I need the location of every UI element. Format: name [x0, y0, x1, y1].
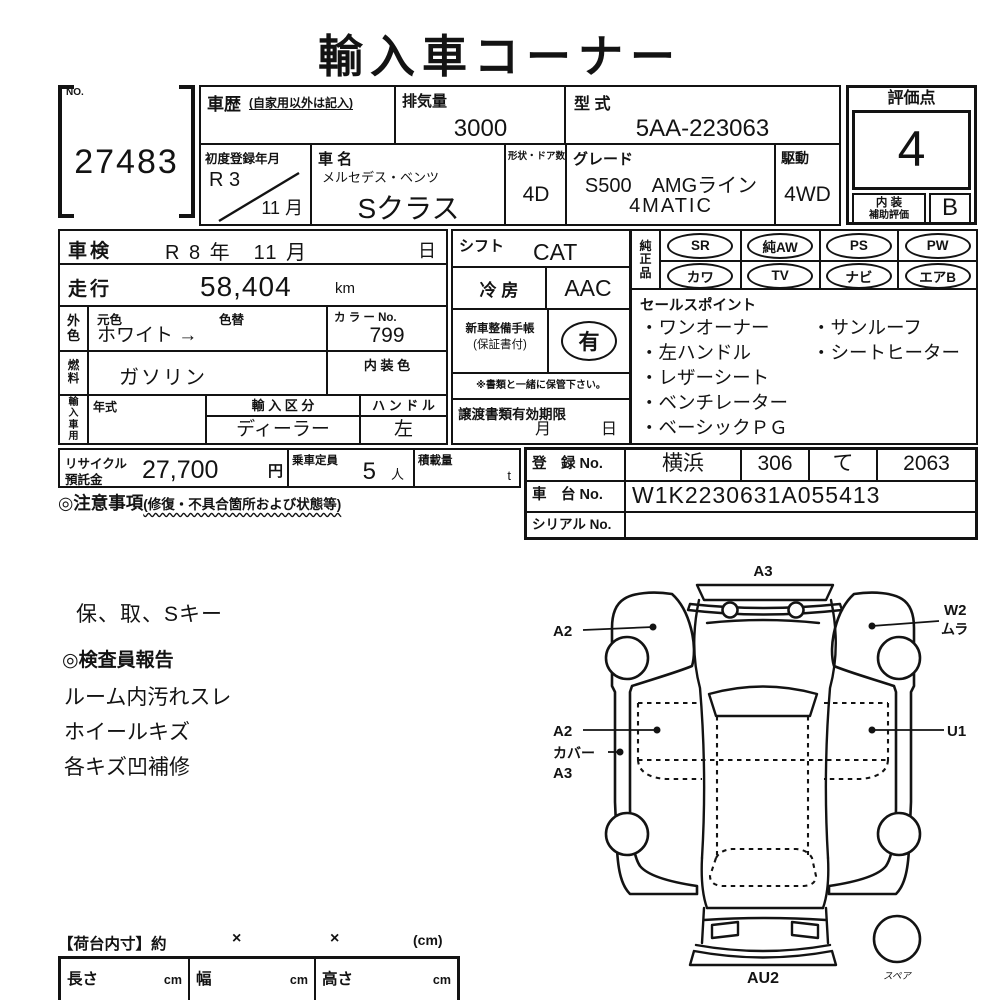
inspector-note: ルーム内汚れスレ	[64, 681, 231, 711]
oem-item-sr: SR	[667, 233, 733, 259]
shift-value: CAT	[533, 239, 577, 266]
sales-point: ・シートヒーター	[812, 340, 960, 365]
car-name-box: 車 名 メルセデス・ベンツ Sクラス	[310, 143, 507, 226]
cargo-height-unit: cm	[433, 973, 451, 987]
shift-box: シフト CAT	[451, 229, 631, 268]
import-use-label-cell: 輸入車用	[60, 396, 89, 443]
page-title: 輸入車コーナー	[0, 20, 1000, 85]
service-book-label: 新車整備手帳	[453, 320, 547, 336]
wheel-front-right	[878, 637, 920, 679]
interior-grade-label-box: 内 装 補助評価	[852, 193, 926, 224]
reg-no-number: 2063	[878, 450, 975, 480]
damage-label-a2-upper: A2	[553, 623, 572, 640]
fuel-label: 燃料	[67, 360, 81, 386]
handle-value: 左	[361, 417, 446, 443]
cargo-times-1: ×	[232, 930, 241, 948]
transfer-box: 譲渡書類有効期限 月 日	[451, 398, 631, 445]
chassis-row: 車 台 No. W1K2230631A055413	[527, 480, 975, 512]
chassis-value: W1K2230631A055413	[626, 482, 975, 512]
shape-doors-label: 形状・ドア数	[508, 148, 565, 162]
shift-label: シフト	[459, 235, 504, 256]
import-row: 輸入車用 年式 輸 入 区 分 ディーラー ハ ン ド ル 左	[58, 394, 448, 445]
rear-window-dashed	[710, 849, 816, 886]
caution-line: ◎注意事項(修復・不具合箇所および状態等)	[58, 490, 341, 515]
fuel-value: ガソリン	[119, 361, 207, 390]
recycle-label-2: 預託金	[65, 469, 103, 488]
grade-box: グレード S500 AMGライン 4MATIC	[565, 143, 777, 226]
sales-points-label: セールスポイント	[640, 294, 968, 315]
year-cell: 年式	[89, 396, 207, 443]
interior-grade-label-2: 補助評価	[854, 210, 924, 221]
service-book-sub: (保証書付)	[453, 336, 547, 352]
sales-points-box: セールスポイント ・ワンオーナー・サンルーフ ・左ハンドル・シートヒーター ・レ…	[630, 288, 978, 445]
color-no-value: 799	[328, 324, 446, 348]
import-use-label: 輸入車用	[68, 397, 80, 442]
leader-dot	[650, 624, 657, 631]
cargo-width-unit: cm	[290, 973, 308, 987]
serial-row: シリアル No.	[527, 511, 975, 537]
damage-label-spare: スペア	[883, 971, 912, 982]
oem-item-kawa: カワ	[667, 263, 733, 289]
service-book-box: 新車整備手帳 (保証書付) 有 ※書類と一緒に保管下さい。	[451, 308, 631, 400]
oem-item-navi: ナビ	[826, 263, 892, 289]
shaken-row: 車検 R 8 年 11 月 日	[58, 229, 448, 265]
service-book-stamp: 有	[561, 321, 617, 361]
recycle-value: 27,700	[142, 456, 218, 485]
damage-label-au2: AU2	[747, 970, 779, 987]
ac-value-cell: AAC	[547, 268, 629, 308]
mileage-row: 走行 58,404 km	[58, 263, 448, 307]
ext-color-label-cell: 外色	[60, 307, 89, 350]
leader-dot	[869, 727, 876, 734]
cargo-table: 長さ cm 幅 cm 高さ cm	[58, 956, 460, 1000]
interior-grade-value-box: B	[929, 193, 971, 224]
import-class-value: ディーラー	[207, 417, 359, 443]
capacity-value: 5	[363, 458, 376, 486]
interior-grade-label-1: 内 装	[854, 196, 924, 210]
sales-point: ・ワンオーナー	[640, 315, 812, 340]
caution-note: (修復・不具合箇所および状態等)	[143, 497, 341, 512]
cargo-height-label: 高さ	[322, 967, 353, 989]
registration-box: 登 録 No. 横浜 306 て 2063 車 台 No. W1K2230631…	[524, 447, 978, 540]
load-box: 積載量 t	[413, 448, 521, 488]
color-no-label: カ ラ ー No.	[334, 309, 397, 325]
car-body-rear-right	[823, 858, 828, 908]
sales-point: ・レザーシート	[640, 365, 812, 390]
shape-doors-value: 4D	[506, 183, 566, 207]
leader-a2-upper	[583, 627, 653, 630]
car-diagram: A3 A2 W2 ムラ A2 カバー A3 U1 AU2 スペア	[520, 558, 990, 1000]
cargo-length-cell: 長さ cm	[61, 959, 190, 1000]
car-body-rear-left	[702, 858, 707, 908]
load-label: 積載量	[418, 452, 453, 468]
damage-label-a3-left: A3	[553, 765, 572, 782]
tail-light-right	[792, 922, 818, 938]
tail-light-left	[712, 922, 738, 938]
cargo-times-2: ×	[330, 930, 339, 948]
leader-dot	[654, 727, 661, 734]
wheel-front-left	[606, 637, 648, 679]
score-value: 4	[898, 121, 926, 177]
sales-point: ・左ハンドル	[640, 340, 812, 365]
recycle-unit: 円	[268, 460, 283, 481]
recycle-box: リサイクル 預託金 27,700 円	[58, 448, 290, 488]
service-note: ※書類と一緒に保管下さい。	[453, 372, 629, 398]
oem-item-airbag: エアB	[905, 263, 971, 289]
cargo-unit-note: (cm)	[413, 932, 443, 948]
cargo-height-cell: 高さ cm	[316, 959, 457, 1000]
washer-right	[789, 603, 804, 618]
history-box: 車歴 (自家用以外は記入)	[199, 85, 397, 146]
displacement-box: 排気量 3000	[394, 85, 567, 146]
fuel-label-cell: 燃料	[60, 352, 89, 394]
front-bumper-lip	[688, 604, 842, 615]
reg-no-class: 306	[742, 450, 810, 480]
sales-point: ・サンルーフ	[812, 315, 922, 340]
displacement-label: 排気量	[402, 90, 447, 111]
wheel-rear-right	[878, 813, 920, 855]
damage-label-u1: U1	[947, 723, 966, 740]
sales-point: ・ベンチレーター	[640, 390, 812, 415]
shaken-value: R 8 年 11 月	[165, 236, 308, 265]
fuel-value-cell: ガソリン	[89, 352, 326, 394]
oem-item-tv: TV	[747, 263, 813, 289]
handle-label: ハ ン ド ル	[361, 396, 446, 417]
front-bumper	[697, 585, 833, 600]
drive-value: 4WD	[776, 183, 839, 207]
cowl-line	[707, 620, 819, 623]
washer-left	[723, 603, 738, 618]
fuel-row: 燃料 ガソリン 内 装 色	[58, 350, 448, 396]
inspector-note: ホイールキズ	[64, 716, 190, 746]
damage-label-cover: カバー	[553, 745, 595, 761]
rear-door-dashed-left	[638, 760, 702, 779]
car-name-label: 車 名	[318, 148, 352, 169]
rear-door-dashed-right	[824, 760, 888, 779]
model-code-label: 型 式	[574, 90, 610, 114]
interior-color-cell: 内 装 色	[326, 352, 446, 394]
score-box: 評価点 4 内 装 補助評価 B	[846, 85, 977, 225]
keys-note: 保、取、Sキー	[76, 598, 223, 628]
history-note: (自家用以外は記入)	[249, 94, 353, 111]
year-label: 年式	[93, 398, 117, 415]
interior-grade-value: B	[942, 194, 958, 221]
cargo-title: 【荷台内寸】約	[58, 932, 167, 954]
drive-label: 駆動	[781, 148, 809, 168]
damage-label-a3-front: A3	[753, 563, 772, 580]
score-label: 評価点	[849, 88, 974, 110]
lot-no-bracket: NO. 27483	[58, 85, 195, 218]
auction-sheet: 輸入車コーナー NO. 27483 車歴 (自家用以外は記入) 排気量 3000…	[0, 0, 1000, 1000]
oem-item-ps: PS	[826, 233, 892, 259]
history-label: 車歴	[207, 90, 241, 115]
oem-label-cell: 純正品	[632, 231, 661, 289]
reg-no-kana: て	[810, 450, 878, 480]
ac-value: AAC	[564, 275, 611, 302]
service-book-value: 有	[579, 326, 600, 356]
capacity-box: 乗車定員 5 人	[287, 448, 416, 488]
interior-color-label: 内 装 色	[328, 355, 446, 374]
grade-line2: 4MATIC	[567, 195, 775, 218]
transfer-day: 日	[601, 415, 617, 439]
reg-no-area: 横浜	[626, 450, 742, 480]
sales-point: ・ベーシックＰＧ	[640, 415, 812, 440]
color-no-cell: カ ラ ー No. 799	[326, 307, 446, 350]
displacement-value: 3000	[396, 115, 565, 143]
caution-label: ◎注意事項	[58, 493, 143, 513]
capacity-label: 乗車定員	[292, 452, 338, 468]
car-maker: メルセデス・ベンツ	[322, 167, 439, 186]
inspector-note: 各キズ凹補修	[64, 751, 190, 781]
rear-bumper-skirt	[690, 945, 836, 965]
oem-label: 純正品	[638, 240, 652, 280]
door-area-dashed	[638, 703, 888, 760]
grade-line1: S500 AMGライン	[567, 169, 775, 198]
capacity-unit: 人	[391, 464, 404, 483]
reg-no-label: 登 録 No.	[527, 450, 626, 480]
damage-label-mura: ムラ	[941, 621, 968, 637]
wheel-rear-left	[606, 813, 648, 855]
first-reg-month: 11 月	[261, 194, 303, 220]
damage-label-a2-mid: A2	[553, 723, 572, 740]
color-row: 外色 元色 色替 ホワイト → カ ラ ー No. 799	[58, 305, 448, 352]
first-reg-label: 初度登録年月	[205, 148, 280, 167]
load-unit: t	[507, 468, 511, 483]
serial-label: シリアル No.	[527, 513, 626, 537]
damage-label-w2: W2	[944, 602, 967, 619]
drive-box: 駆動 4WD	[774, 143, 841, 226]
shaken-label: 車検	[68, 236, 112, 263]
lot-no: 27483	[58, 143, 195, 182]
first-reg-year: R 3	[209, 169, 240, 192]
color-value: ホワイト →	[97, 320, 197, 347]
car-body-left-edge	[694, 600, 704, 858]
service-book-label-cell: 新車整備手帳 (保証書付)	[453, 310, 549, 372]
transfer-month: 月	[535, 415, 551, 439]
oem-item-aw: 純AW	[747, 233, 813, 259]
color-main-cell: 元色 色替 ホワイト →	[89, 307, 326, 350]
import-class-cell: 輸 入 区 分 ディーラー	[207, 396, 361, 443]
oem-item-pw: PW	[905, 233, 971, 259]
model-code-box: 型 式 5AA-223063	[564, 85, 841, 146]
reg-no-row: 登 録 No. 横浜 306 て 2063	[527, 450, 975, 480]
import-class-label: 輸 入 区 分	[207, 396, 359, 417]
model-code-value: 5AA-223063	[566, 115, 839, 143]
score-value-box: 4	[852, 110, 971, 190]
lot-no-label: NO.	[66, 87, 84, 98]
car-body-right-edge	[826, 600, 836, 858]
ext-color-label: 外色	[66, 314, 82, 343]
cargo-length-label: 長さ	[67, 967, 98, 989]
spare-tire-circle	[874, 916, 920, 962]
mileage-label: 走行	[68, 274, 112, 301]
leader-w2	[872, 621, 939, 626]
repaint-label: 色替	[219, 309, 244, 328]
cargo-width-label: 幅	[196, 967, 212, 989]
ac-label-cell: 冷 房	[453, 268, 547, 308]
shape-doors-box: 形状・ドア数 4D	[504, 143, 568, 226]
leader-dot	[869, 623, 876, 630]
oem-box: 純正品 SR 純AW PS PW カワ TV ナビ エアB	[630, 229, 978, 291]
handle-cell: ハ ン ド ル 左	[361, 396, 446, 443]
inspector-report-title: ◎検査員報告	[62, 645, 174, 672]
grade-label: グレード	[573, 148, 633, 169]
shaken-day: 日	[418, 237, 436, 263]
car-model: Sクラス	[312, 187, 505, 227]
mileage-unit: km	[335, 280, 355, 297]
serial-value	[626, 513, 975, 537]
windshield	[709, 687, 817, 717]
ac-box: 冷 房 AAC	[451, 266, 631, 310]
first-reg-box: 初度登録年月 R 3 11 月	[199, 143, 313, 226]
cargo-length-unit: cm	[164, 973, 182, 987]
mileage-value: 58,404	[200, 271, 292, 303]
ac-label: 冷 房	[480, 276, 519, 301]
cargo-width-cell: 幅 cm	[190, 959, 316, 1000]
chassis-label: 車 台 No.	[527, 482, 626, 512]
leader-dot	[617, 749, 624, 756]
